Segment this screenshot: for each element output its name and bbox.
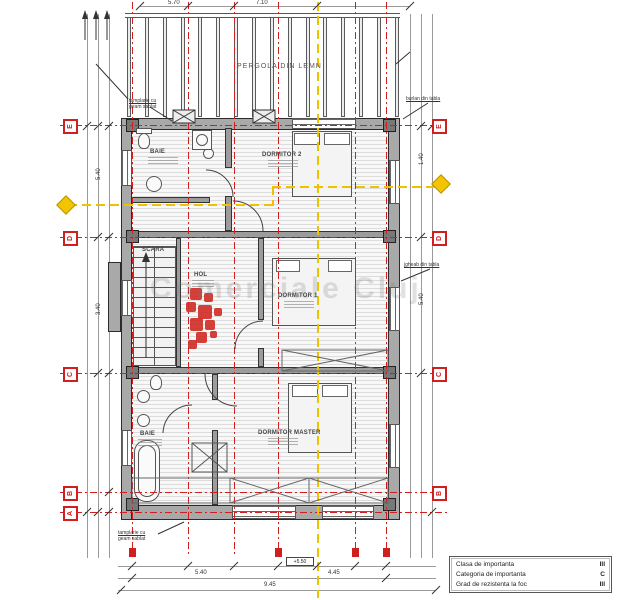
- room-label-scara: SCARA: [142, 247, 164, 253]
- toilet: [138, 133, 150, 149]
- legend-row: Clasa de importanta III: [456, 560, 605, 570]
- arrow-stems: [85, 14, 107, 40]
- legend-value: III: [600, 580, 605, 590]
- shower-drain: [146, 176, 162, 192]
- grid-bubble-right-b: B: [432, 486, 447, 501]
- grid-foot-marker: [275, 548, 282, 557]
- dim-right-1: 1.40: [419, 153, 425, 165]
- legend-row: Grad de rezistenta la foc III: [456, 580, 605, 590]
- annotation-jgheab: jgheab din tabla: [404, 262, 439, 268]
- grid-line-horizontal: [60, 125, 448, 126]
- interior-wall-dorm1-b: [258, 348, 264, 367]
- window: [389, 160, 400, 204]
- room-label-master: DORMITOR MASTER: [258, 430, 321, 436]
- pillow: [276, 260, 300, 272]
- annotation-bottom-left: tamplarie cu geam sablat: [118, 530, 145, 542]
- grid-line-horizontal: [60, 492, 448, 493]
- grid-foot-marker: [129, 548, 136, 557]
- dim-bottom-2: 4.45: [328, 570, 340, 576]
- annotation-top-left: tamplarie cu geam sablat: [129, 98, 156, 110]
- section-line-jog: [272, 186, 274, 206]
- dimension-chain-left-1: [87, 14, 88, 558]
- section-marker-left: [56, 195, 76, 215]
- grid-bubble-left-a: A: [63, 506, 78, 521]
- dimension-chain-bottom-2: [118, 578, 436, 579]
- pilaster: [383, 498, 396, 511]
- dimension-chain-bottom-1: [118, 566, 436, 567]
- room-label-dormitor2: DORMITOR 2: [262, 152, 302, 158]
- window: [121, 280, 132, 316]
- grid-line-horizontal: [60, 237, 448, 238]
- dim-bottom-3: 9.45: [264, 582, 276, 588]
- legend-label: Grad de rezistenta la foc: [456, 580, 527, 590]
- grid-foot-marker: [352, 548, 359, 557]
- grid-bubble-left-e: E: [63, 119, 78, 134]
- grid-bubble-right-e: E: [432, 119, 447, 134]
- pillow: [324, 133, 350, 145]
- pillow: [292, 385, 318, 397]
- pergola-beam-top: [125, 13, 400, 14]
- bathtub-inner: [138, 445, 156, 497]
- toilet: [150, 375, 162, 390]
- stair-stringer: [154, 246, 155, 366]
- dimension-chain-bottom-3: [118, 590, 436, 591]
- legend-label: Clasa de importanta: [456, 560, 514, 570]
- grid-line-horizontal: [60, 512, 448, 513]
- exterior-projection-left: [108, 262, 121, 332]
- window: [292, 118, 356, 129]
- window: [121, 430, 132, 466]
- interior-wall-bath-divider-a: [225, 128, 232, 168]
- grid-line-horizontal: [60, 373, 448, 374]
- grid-bubble-right-d: D: [432, 231, 447, 246]
- watermark-text: Comerciale Cluj: [150, 272, 422, 306]
- room-label-baie-bottom: BAIE: [140, 431, 155, 437]
- dim-bottom-1: 5.40: [195, 570, 207, 576]
- grid-bubble-left-d: D: [63, 231, 78, 246]
- sink: [137, 414, 150, 427]
- annotation-burlan: burlan din tabla: [406, 96, 440, 102]
- exterior-wall-top: [121, 118, 400, 130]
- pergola-label: PERGOLA DIN LEMN: [237, 63, 322, 70]
- dimension-chain-left-2: [98, 14, 99, 558]
- window: [121, 150, 132, 186]
- interior-wall-bath2-b: [212, 430, 218, 505]
- grid-line-vertical: [132, 2, 133, 556]
- floor-plan-canvas: 5.70 7.10 5.40 3.40 1.40 5.40 5.40 4.45 …: [0, 0, 623, 600]
- dimension-chain-top: [140, 6, 410, 7]
- section-marker-right: [431, 174, 451, 194]
- room-sublabel-lines: [268, 160, 298, 168]
- dim-left-2: 3.40: [96, 303, 102, 315]
- grid-bubble-left-b: B: [63, 486, 78, 501]
- room-sublabel-lines: [268, 438, 298, 446]
- section-line-horizontal-right: [272, 186, 448, 188]
- interior-wall-bath-divider-b: [225, 196, 232, 231]
- toilet-tank: [136, 128, 152, 134]
- pillow: [328, 260, 352, 272]
- window: [389, 424, 400, 468]
- legend-value: C: [600, 570, 605, 580]
- washing-machine-drum: [196, 134, 208, 146]
- legend-value: III: [600, 560, 605, 570]
- dim-top-1: 5.70: [168, 0, 180, 6]
- interior-wall-bath-south: [132, 197, 210, 203]
- interior-wall-bath2-a: [212, 374, 218, 400]
- elevation-marker: +5.50: [286, 557, 314, 566]
- grid-bubble-right-c: C: [432, 367, 447, 382]
- room-sublabel-lines: [148, 157, 178, 165]
- legend-label: Categoria de importanta: [456, 570, 526, 580]
- room-sublabel-lines: [138, 439, 162, 447]
- sink: [137, 390, 150, 403]
- dim-top-2: 7.10: [256, 0, 268, 6]
- legend-box: Clasa de importanta III Categoria de imp…: [449, 556, 612, 593]
- legend-row: Categoria de importanta C: [456, 570, 605, 580]
- dim-left-1: 5.40: [96, 168, 102, 180]
- room-label-baie-top: BAIE: [150, 149, 165, 155]
- grid-foot-marker: [383, 548, 390, 557]
- grid-bubble-left-c: C: [63, 367, 78, 382]
- pillow: [322, 385, 348, 397]
- section-line-horizontal-left: [68, 204, 272, 206]
